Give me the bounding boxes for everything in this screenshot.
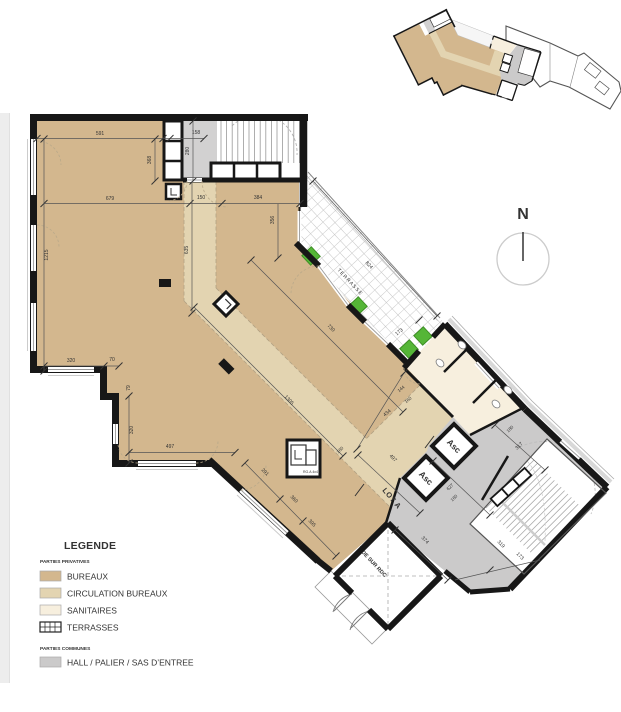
svg-text:BUREAUX: BUREAUX <box>67 572 108 582</box>
svg-text:635: 635 <box>184 246 190 255</box>
svg-text:368: 368 <box>147 156 153 165</box>
svg-text:HALL / PALIER / SAS D’ENTREE: HALL / PALIER / SAS D’ENTREE <box>67 658 194 668</box>
svg-text:PARTIES COMMUNES: PARTIES COMMUNES <box>40 646 91 652</box>
svg-text:1215: 1215 <box>44 249 50 260</box>
svg-text:CIRCULATION BUREAUX: CIRCULATION BUREAUX <box>67 589 168 599</box>
svg-text:356: 356 <box>270 216 276 225</box>
svg-text:320: 320 <box>67 358 76 364</box>
svg-text:320: 320 <box>129 426 135 435</box>
svg-text:SANITAIRES: SANITAIRES <box>67 606 117 616</box>
svg-text:RG.A 4x4: RG.A 4x4 <box>303 470 318 474</box>
svg-text:N: N <box>517 206 529 223</box>
svg-text:280: 280 <box>185 147 191 156</box>
svg-text:150: 150 <box>197 195 206 201</box>
svg-text:70: 70 <box>109 357 115 363</box>
svg-text:497: 497 <box>166 444 175 450</box>
svg-text:679: 679 <box>106 196 115 202</box>
svg-text:PARTIES PRIVATIVES: PARTIES PRIVATIVES <box>40 559 90 565</box>
svg-text:384: 384 <box>254 195 263 201</box>
svg-text:LEGENDE: LEGENDE <box>64 540 116 552</box>
svg-text:TERRASSES: TERRASSES <box>67 623 119 633</box>
svg-text:591: 591 <box>96 131 105 137</box>
svg-text:79: 79 <box>126 385 132 391</box>
